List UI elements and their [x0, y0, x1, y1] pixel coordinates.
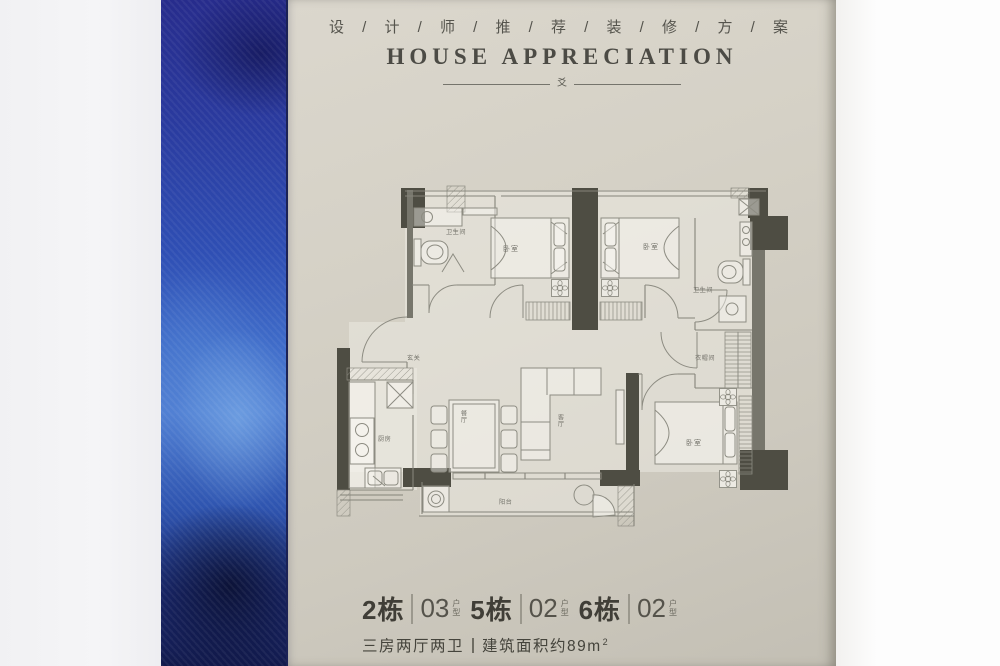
bed2-icon: [601, 218, 679, 278]
desc-separator: [472, 638, 474, 653]
ornament-icon: 爻: [557, 79, 567, 89]
wardrobe-icon: [600, 302, 642, 320]
tv-console-icon: [616, 390, 624, 444]
photo-of-poster: 设 / 计 / 师 / 推 / 荐 / 装 / 修 / 方 / 案 HOUSE …: [0, 0, 1000, 666]
area-value: 建筑面积约89m: [482, 638, 602, 655]
room-label-foyer: 玄关: [407, 354, 420, 362]
unit-separator: [628, 594, 630, 624]
room-label-kitchen: 厨房: [378, 435, 391, 443]
unit-number: 02: [529, 593, 558, 624]
room-label-bath2: 卫生间: [693, 286, 713, 294]
unit-building-5: 5栋 02 户型: [470, 590, 569, 627]
basin-icon: [719, 296, 746, 322]
ac-unit-icon: [720, 471, 737, 488]
room-label-bath1: 卫生间: [446, 228, 466, 236]
floor-plan-drawing: 卫生间 卧室 卧室 卫生间 衣帽间 玄关 厨房 餐厅 客厅 卧室 阳台: [335, 182, 790, 530]
poster-footer: 2栋 03 户型 5栋 02 户型 6栋 02 户型: [362, 590, 678, 656]
unit-separator: [411, 594, 413, 624]
unit-type-label: 户型: [561, 600, 570, 617]
en-title: HOUSE APPRECIATION: [288, 44, 836, 70]
divider-line-right: [574, 84, 681, 85]
unit-description: 三房两厅两卫 建筑面积约89m2: [362, 634, 678, 656]
unit-separator: [520, 594, 522, 624]
blue-artwork-panel: [161, 0, 288, 666]
wardrobe-icon: [526, 302, 570, 320]
room-label-dining: 餐厅: [460, 409, 467, 423]
room-label-closet: 衣帽间: [695, 354, 715, 362]
building-name: 5栋: [470, 590, 512, 627]
room-label-balcony: 阳台: [499, 498, 512, 506]
room-label-bedroom2: 卧室: [643, 242, 659, 251]
room-label-living: 客厅: [557, 413, 564, 427]
poster-header: 设 / 计 / 师 / 推 / 荐 / 装 / 修 / 方 / 案 HOUSE …: [288, 16, 836, 89]
unit-building-6: 6栋 02 户型: [579, 590, 678, 627]
room-count-text: 三房两厅两卫: [362, 634, 464, 656]
background-wall-left: [0, 0, 161, 666]
master-bed-icon: [655, 396, 752, 474]
title-divider: 爻: [443, 79, 681, 89]
dining-table-icon: [431, 400, 517, 472]
cn-title: 设 / 计 / 师 / 推 / 荐 / 装 / 修 / 方 / 案: [288, 16, 836, 37]
ac-unit-icon: [552, 280, 569, 297]
stove-icon: [350, 418, 374, 464]
unit-type-label: 户型: [452, 600, 461, 617]
building-name: 2栋: [362, 590, 404, 627]
unit-building-2: 2栋 03 户型: [362, 590, 461, 627]
area-sup: 2: [603, 637, 610, 647]
area-text: 建筑面积约89m2: [482, 634, 609, 656]
wardrobe-icon: [739, 396, 752, 474]
room-label-bedroom1: 卧室: [503, 244, 519, 253]
washer-icon: [423, 486, 449, 512]
unit-number: 02: [637, 593, 666, 624]
divider-line-left: [443, 84, 550, 85]
ac-unit-icon: [602, 280, 619, 297]
unit-list: 2栋 03 户型 5栋 02 户型 6栋 02 户型: [362, 590, 678, 627]
unit-number: 03: [420, 593, 449, 624]
ac-unit-icon: [720, 389, 737, 406]
building-name: 6栋: [579, 590, 621, 627]
background-wall-right: [836, 0, 1000, 666]
toilet-icon: [414, 239, 421, 266]
room-label-master: 卧室: [686, 438, 702, 447]
closet-shelves: [725, 332, 751, 388]
unit-type-label: 户型: [669, 600, 678, 617]
